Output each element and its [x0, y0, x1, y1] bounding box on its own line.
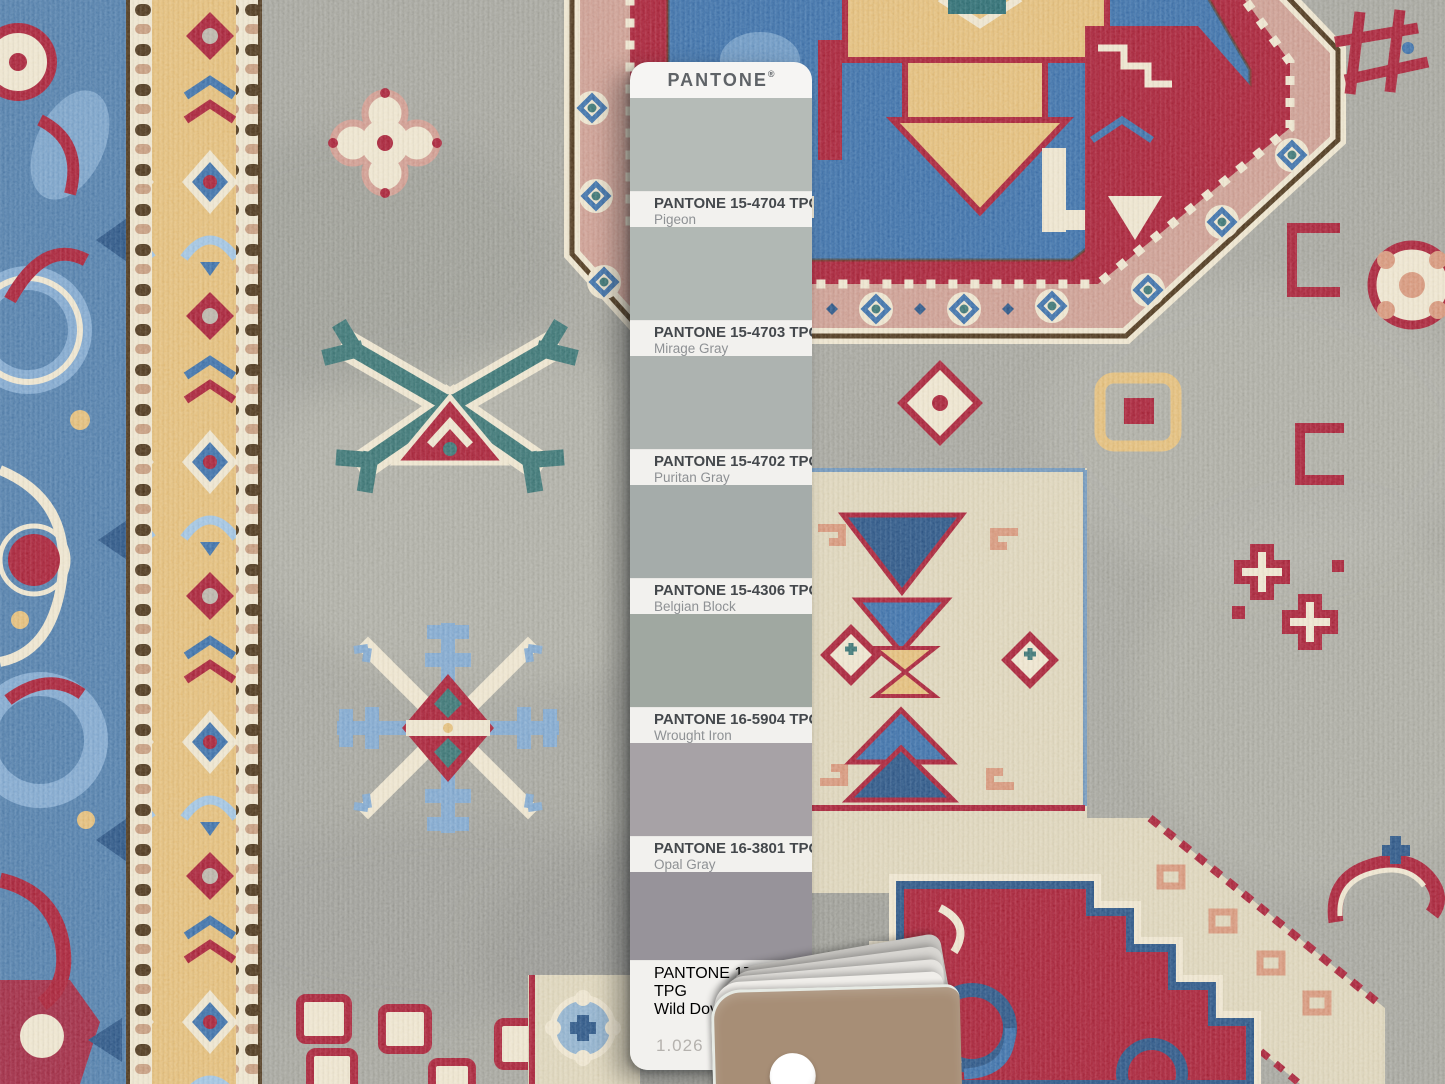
swatch-chip-belgian-block — [630, 485, 812, 578]
swatch-label-opal-gray: PANTONE 16-3801 TPG Opal Gray — [630, 836, 812, 872]
swatch-name: Puritan Gray — [654, 470, 812, 485]
swatch-code: PANTONE 15-4703 TPG — [654, 324, 812, 341]
fan-deck-top-card — [710, 984, 962, 1084]
fan-deck — [686, 944, 986, 1084]
swatch-chip-mirage-gray — [630, 227, 812, 320]
pantone-logo: PANTONE® — [630, 62, 812, 98]
swatch-chip-puritan-gray — [630, 356, 812, 449]
photo-stage: PANTONE® PANTONE 15-4704 TPG Pigeon PANT… — [0, 0, 1445, 1084]
swatch-code: PANTONE 15-4702 TPG — [654, 453, 812, 470]
swatch-code: PANTONE 15-4704 TPG — [654, 195, 812, 212]
swatch-label-belgian-block: PANTONE 15-4306 TPG Belgian Block — [630, 578, 812, 614]
swatch-code: PANTONE 16-3801 TPG — [654, 840, 812, 857]
brand-text: PANTONE — [668, 70, 768, 91]
swatch-name: Wrought Iron — [654, 728, 812, 743]
pantone-card: PANTONE® PANTONE 15-4704 TPG Pigeon PANT… — [630, 62, 812, 1070]
swatch-label-pigeon: PANTONE 15-4704 TPG Pigeon — [630, 191, 812, 227]
swatch-name: Pigeon — [654, 212, 812, 227]
swatch-name: Opal Gray — [654, 857, 812, 872]
swatch-chip-wrought-iron — [630, 614, 812, 707]
swatch-chip-pigeon — [630, 98, 812, 191]
swatch-name: Mirage Gray — [654, 341, 812, 356]
swatch-code: PANTONE 15-4306 TPG — [654, 582, 812, 599]
swatch-name: Belgian Block — [654, 599, 812, 614]
swatch-label-mirage-gray: PANTONE 15-4703 TPG Mirage Gray — [630, 320, 812, 356]
swatch-label-wrought-iron: PANTONE 16-5904 TPG Wrought Iron — [630, 707, 812, 743]
swatch-label-puritan-gray: PANTONE 15-4702 TPG Puritan Gray — [630, 449, 812, 485]
rivet-hole — [769, 1053, 816, 1084]
swatch-code: PANTONE 16-5904 TPG — [654, 711, 812, 728]
registered-mark-icon: ® — [768, 69, 775, 79]
swatch-chip-opal-gray — [630, 743, 812, 836]
